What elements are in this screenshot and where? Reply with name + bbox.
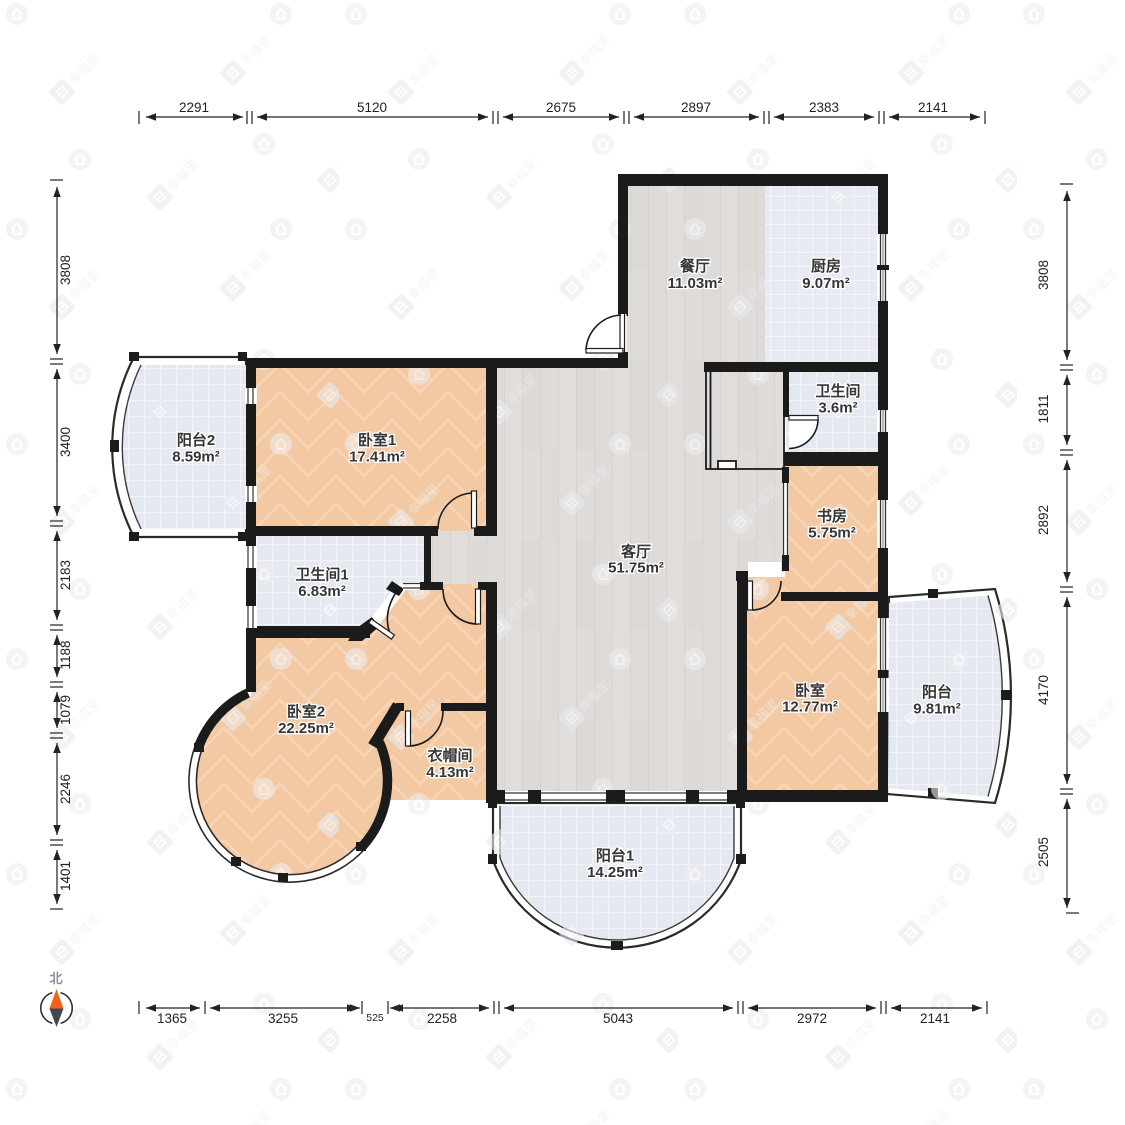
svg-text:客厅: 客厅 bbox=[620, 543, 651, 561]
svg-text:卧室2: 卧室2 bbox=[287, 703, 325, 721]
svg-text:2383: 2383 bbox=[809, 100, 839, 115]
svg-text:22.25m²: 22.25m² bbox=[278, 720, 334, 737]
svg-text:5043: 5043 bbox=[603, 1011, 633, 1026]
svg-text:卫生间1: 卫生间1 bbox=[295, 566, 348, 584]
svg-text:3.6m²: 3.6m² bbox=[818, 400, 857, 417]
svg-text:5120: 5120 bbox=[357, 100, 387, 115]
svg-text:4.13m²: 4.13m² bbox=[426, 764, 474, 781]
svg-text:51.75m²: 51.75m² bbox=[608, 560, 664, 577]
svg-text:2258: 2258 bbox=[427, 1011, 457, 1026]
svg-text:卧室: 卧室 bbox=[795, 682, 825, 700]
svg-text:2897: 2897 bbox=[681, 100, 711, 115]
svg-text:8.59m²: 8.59m² bbox=[172, 449, 220, 466]
svg-text:5.75m²: 5.75m² bbox=[808, 525, 856, 542]
svg-text:2505: 2505 bbox=[1036, 837, 1051, 867]
svg-text:2141: 2141 bbox=[920, 1011, 950, 1026]
svg-text:衣帽间: 衣帽间 bbox=[427, 747, 472, 765]
svg-text:阳台1: 阳台1 bbox=[596, 847, 634, 865]
svg-text:525: 525 bbox=[366, 1012, 384, 1024]
svg-text:餐厅: 餐厅 bbox=[680, 257, 710, 275]
svg-text:4170: 4170 bbox=[1036, 675, 1051, 705]
svg-text:17.41m²: 17.41m² bbox=[349, 449, 405, 466]
svg-text:2246: 2246 bbox=[58, 774, 73, 804]
svg-text:3808: 3808 bbox=[1036, 260, 1051, 290]
svg-text:2183: 2183 bbox=[58, 560, 73, 590]
svg-text:卧室1: 卧室1 bbox=[358, 431, 396, 449]
svg-text:9.07m²: 9.07m² bbox=[802, 275, 850, 292]
svg-text:2291: 2291 bbox=[179, 100, 209, 115]
svg-text:1365: 1365 bbox=[157, 1011, 187, 1026]
svg-text:14.25m²: 14.25m² bbox=[587, 864, 643, 881]
svg-text:1079: 1079 bbox=[58, 695, 73, 725]
svg-text:12.77m²: 12.77m² bbox=[782, 699, 838, 716]
svg-text:卫生间: 卫生间 bbox=[815, 382, 860, 400]
svg-text:2675: 2675 bbox=[546, 100, 576, 115]
svg-text:9.81m²: 9.81m² bbox=[913, 701, 961, 718]
svg-text:1401: 1401 bbox=[58, 861, 73, 891]
svg-text:3400: 3400 bbox=[58, 427, 73, 457]
svg-text:1811: 1811 bbox=[1036, 394, 1051, 423]
svg-text:书房: 书房 bbox=[817, 507, 847, 525]
svg-text:厨房: 厨房 bbox=[811, 257, 841, 275]
svg-text:3255: 3255 bbox=[268, 1011, 298, 1026]
svg-text:2892: 2892 bbox=[1036, 505, 1051, 535]
svg-text:2972: 2972 bbox=[797, 1011, 827, 1026]
svg-text:1188: 1188 bbox=[58, 640, 73, 669]
svg-text:阳台: 阳台 bbox=[922, 683, 952, 701]
svg-text:北: 北 bbox=[49, 971, 62, 986]
svg-text:6.83m²: 6.83m² bbox=[298, 583, 346, 600]
svg-text:2141: 2141 bbox=[918, 100, 948, 115]
svg-text:3808: 3808 bbox=[58, 255, 73, 285]
svg-text:阳台2: 阳台2 bbox=[177, 431, 215, 449]
svg-text:11.03m²: 11.03m² bbox=[667, 275, 722, 292]
